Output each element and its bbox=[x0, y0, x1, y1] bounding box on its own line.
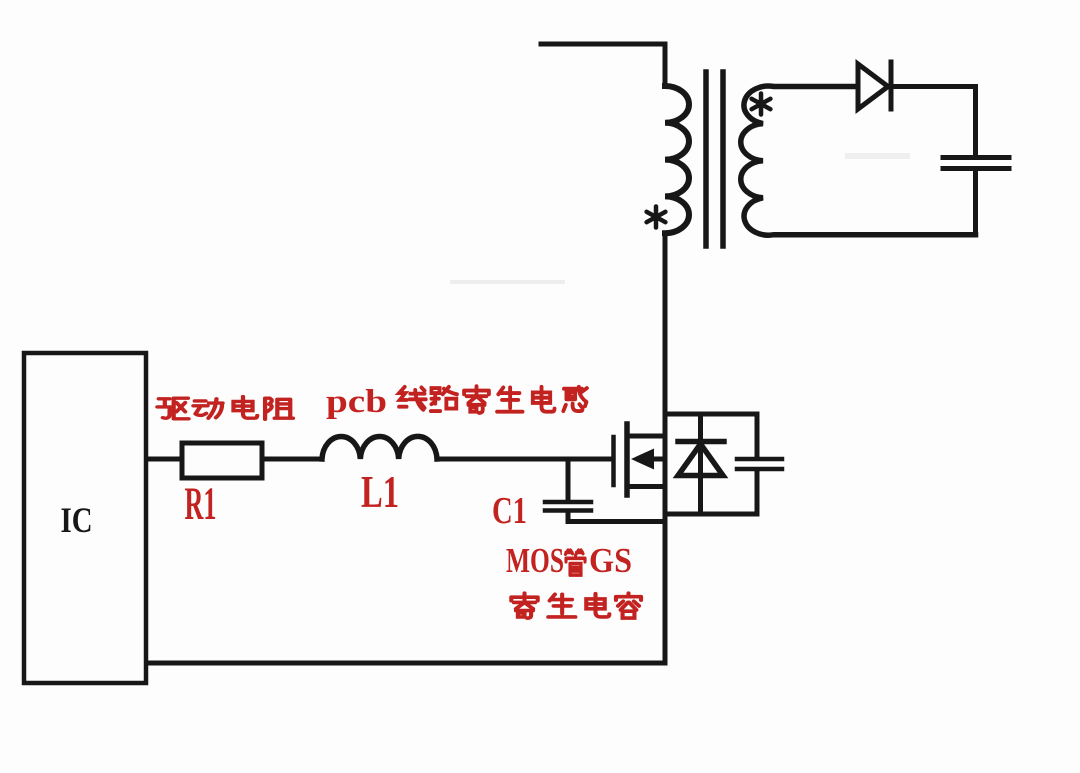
svg-text:MOS: MOS bbox=[506, 541, 564, 580]
svg-text:IC: IC bbox=[61, 500, 93, 540]
svg-text:GS: GS bbox=[589, 541, 632, 580]
svg-text:L1: L1 bbox=[361, 467, 399, 517]
svg-text:pcb: pcb bbox=[326, 384, 387, 420]
svg-text:R1: R1 bbox=[185, 478, 217, 530]
svg-text:C1: C1 bbox=[492, 490, 527, 532]
